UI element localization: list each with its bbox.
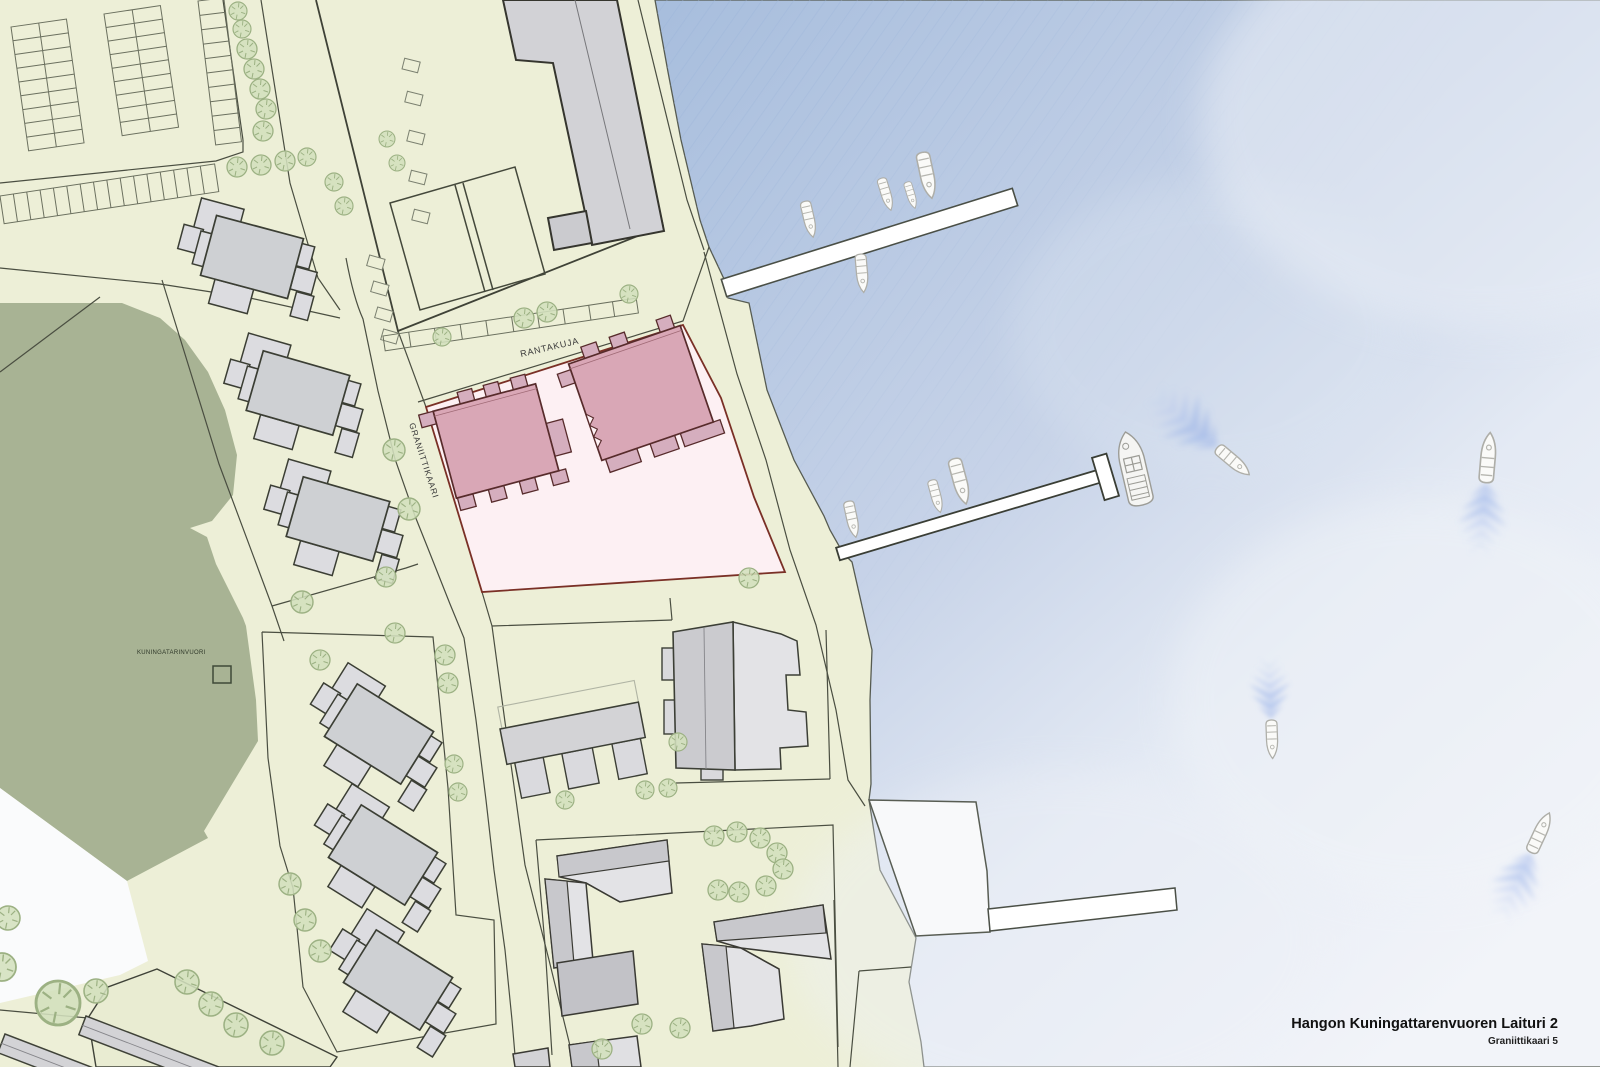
svg-text:Hangon Kuningattarenvuoren Lai: Hangon Kuningattarenvuoren Laituri 2 (1291, 1016, 1558, 1032)
svg-text:Graniittikaari 5: Graniittikaari 5 (1488, 1036, 1558, 1047)
svg-text:KUNINGATARINVUORI: KUNINGATARINVUORI (137, 650, 206, 656)
